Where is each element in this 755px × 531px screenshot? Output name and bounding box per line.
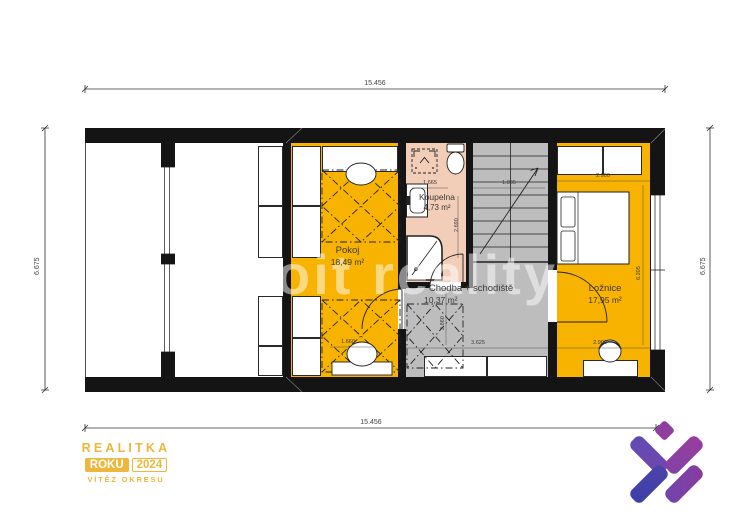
floor-plan-canvas: oit reality Pokoj 18,49 m² Koupelna 4,73… xyxy=(0,0,755,531)
dim-chodba-height: 2.860 xyxy=(440,316,446,330)
award-subtitle: VÍTĚZ OKRESU xyxy=(74,475,178,484)
award-title: REALITKA xyxy=(74,441,178,455)
label-chodba: Chodba + schodiště 10,37 m² xyxy=(420,283,522,306)
toilet xyxy=(447,144,464,174)
door-pokoj xyxy=(362,289,402,329)
ceiling-hatch-chodba xyxy=(407,304,463,368)
dim-loznice-bottom: 2.900 xyxy=(585,340,615,346)
agency-logo xyxy=(628,420,712,510)
room-area: 4,73 m² xyxy=(405,203,469,213)
label-loznice: Ložnice 17,95 m² xyxy=(565,283,645,306)
room-area: 10,37 m² xyxy=(420,295,522,306)
room-name: Chodba + schodiště xyxy=(420,283,522,295)
label-pokoj: Pokoj 18,49 m² xyxy=(310,245,385,268)
award-year: 2024 xyxy=(132,458,168,472)
dim-top: 15.456 xyxy=(340,80,410,87)
dim-bottom: 15.456 xyxy=(336,419,406,426)
bed-loznice xyxy=(557,192,629,264)
award-year-row: ROKU 2024 xyxy=(74,458,178,472)
bed-pokoj-top xyxy=(346,163,376,185)
dim-loznice-height: 6.205 xyxy=(636,266,642,280)
room-area: 18,49 m² xyxy=(310,257,385,268)
room-name: Pokoj xyxy=(310,245,385,257)
dim-left: 6.675 xyxy=(34,257,41,275)
dim-chodba-width: 3.625 xyxy=(463,340,493,346)
shower xyxy=(407,236,442,280)
window-glazing-right xyxy=(651,195,665,350)
dim-koupelna-height: 2.690 xyxy=(454,218,460,232)
room-name: Koupelna xyxy=(405,192,469,203)
logo-diamond-icon xyxy=(654,420,675,441)
staircase xyxy=(473,143,548,262)
dim-loznice-top: 2.900 xyxy=(588,173,618,179)
washing-machine xyxy=(412,149,437,173)
window-glazing-left xyxy=(161,167,175,352)
dim-schodiste-width: 1.835 xyxy=(494,180,524,186)
room-name: Ložnice xyxy=(565,283,645,295)
room-area: 17,95 m² xyxy=(565,295,645,306)
label-koupelna: Koupelna 4,73 m² xyxy=(405,192,469,213)
award-chip: ROKU xyxy=(85,458,129,472)
dim-right: 6.675 xyxy=(700,257,707,275)
logo-bar-icon xyxy=(628,463,670,505)
dim-pokoj-bed-width: 1.660 xyxy=(334,339,362,345)
dim-koupelna-width: 1.665 xyxy=(415,180,445,186)
award-badge: REALITKA ROKU 2024 VÍTĚZ OKRESU xyxy=(74,441,178,484)
